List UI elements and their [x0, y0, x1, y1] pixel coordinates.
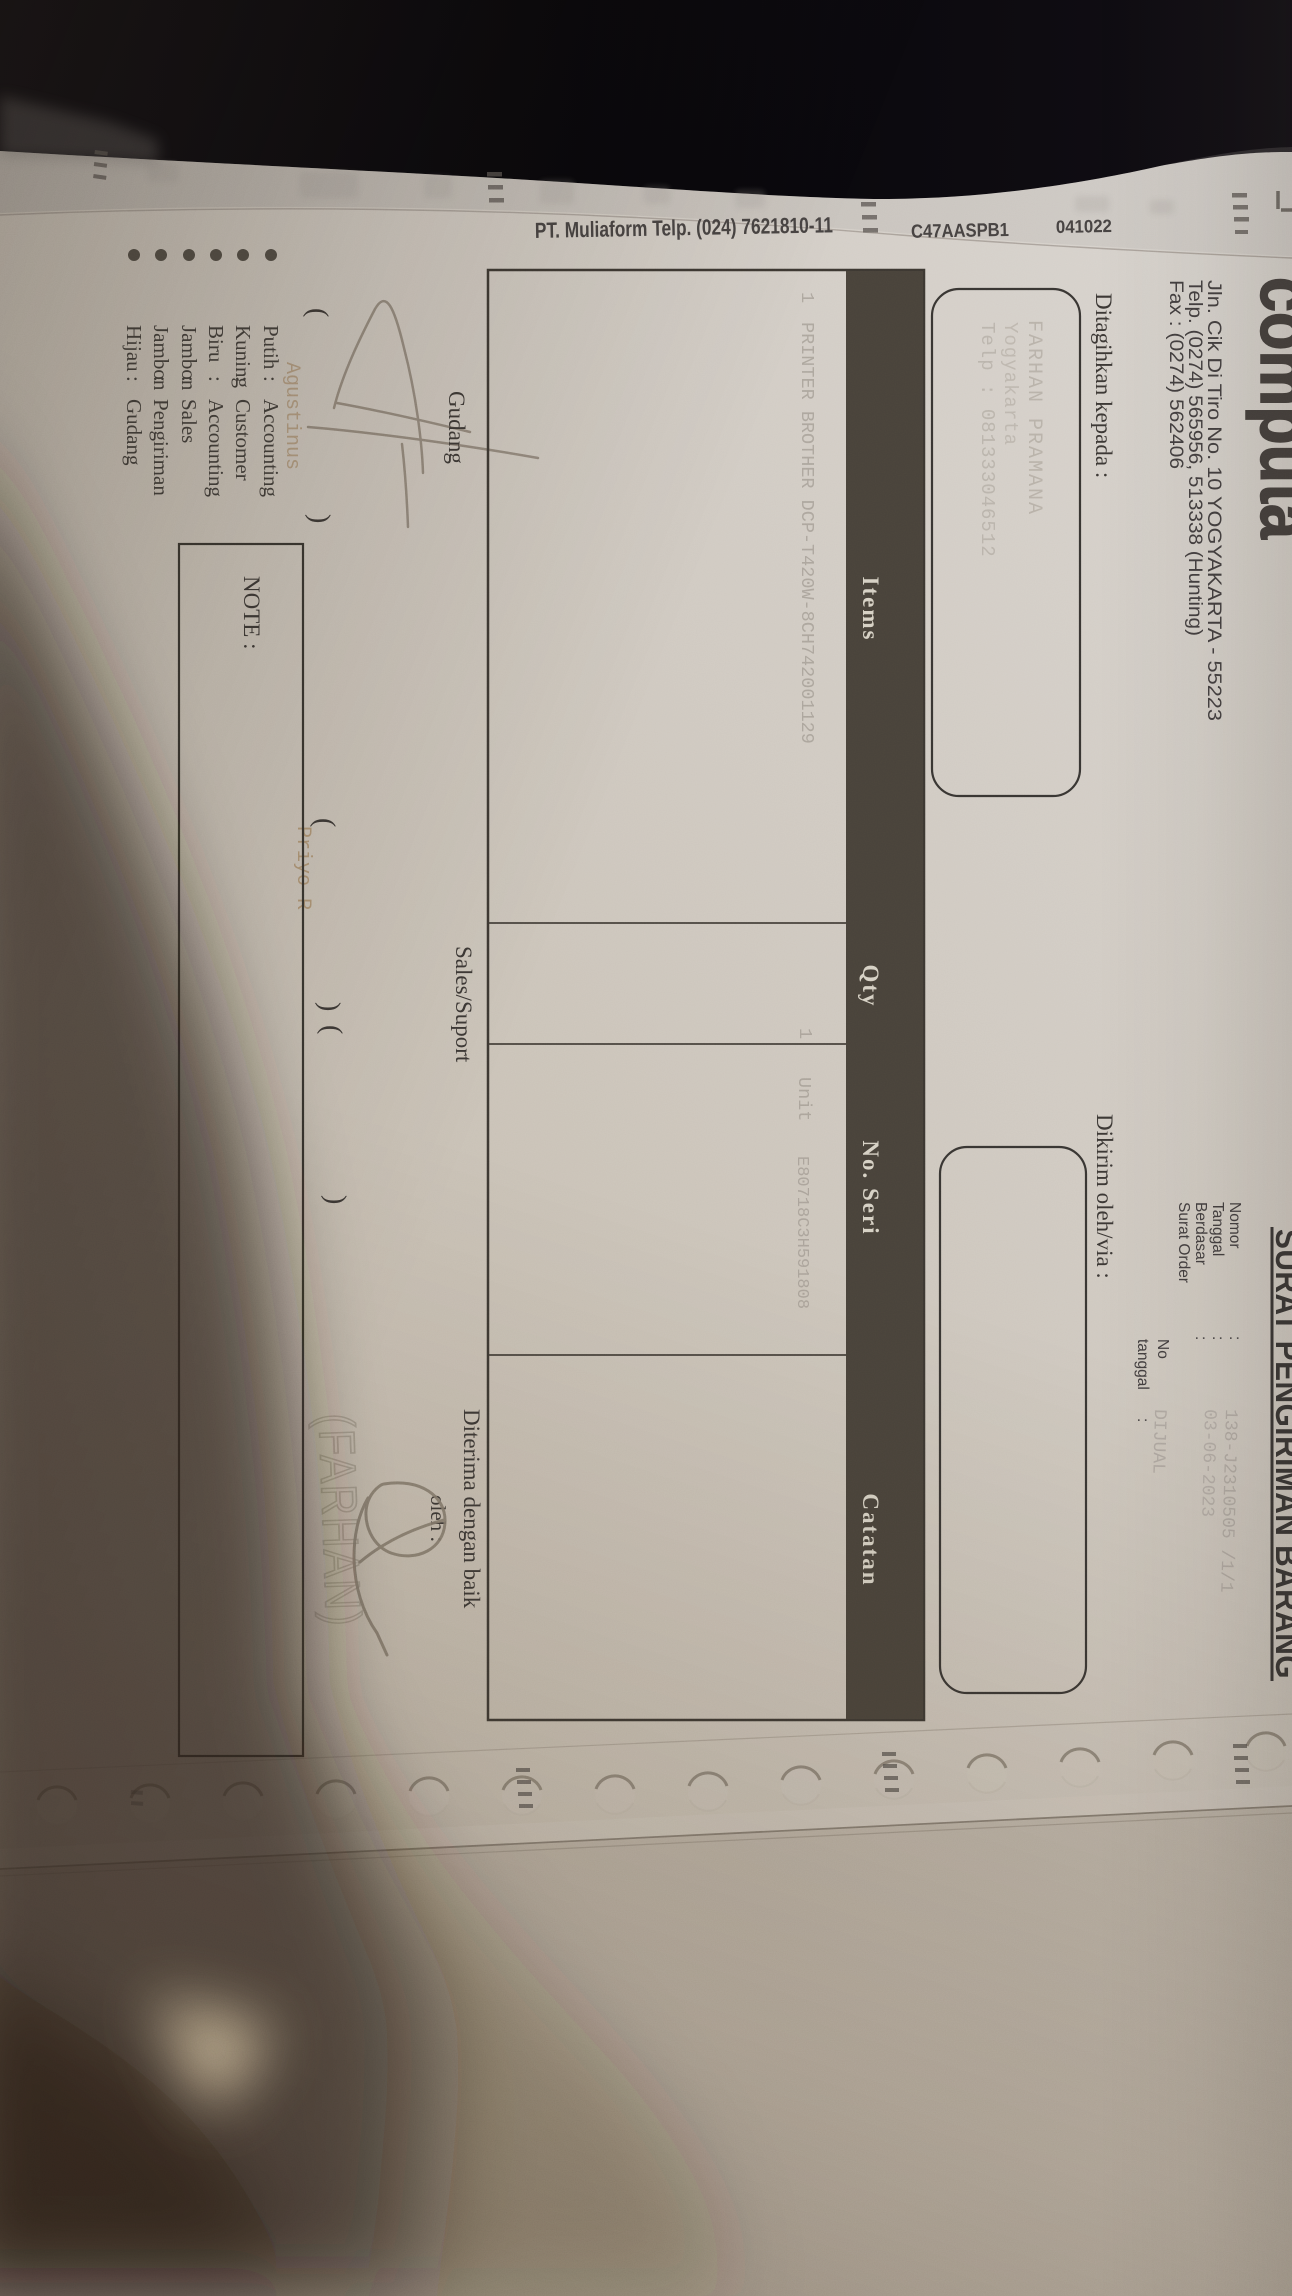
- svg-text:Accounting: Accounting: [259, 399, 283, 497]
- svg-text:): ): [320, 1195, 351, 1204]
- svg-text::: :: [204, 376, 228, 382]
- svg-text:Catatan: Catatan: [858, 1493, 883, 1586]
- svg-text:Items: Items: [858, 577, 883, 642]
- svg-text:Ditagihkan kepada :: Ditagihkan kepada :: [1091, 293, 1116, 478]
- svg-text:Surat Order: Surat Order: [1175, 1202, 1192, 1283]
- svg-text::: :: [1209, 1336, 1226, 1340]
- svg-text:1: 1: [794, 1028, 815, 1039]
- svg-text:03-06-2023: 03-06-2023: [1196, 1409, 1219, 1518]
- svg-text:FARHAN PRAMANA: FARHAN PRAMANA: [1022, 320, 1045, 516]
- svg-text:Sales/Suport: Sales/Suport: [451, 946, 476, 1063]
- svg-text:No. Seri: No. Seri: [858, 1140, 883, 1235]
- svg-text:tanggal: tanggal: [1134, 1339, 1151, 1390]
- svg-text:Gudang: Gudang: [444, 391, 469, 464]
- svg-text:Accounting: Accounting: [204, 399, 228, 497]
- svg-text:Berdasar: Berdasar: [1192, 1202, 1209, 1265]
- svg-text:Biru: Biru: [204, 325, 228, 363]
- svg-text::: :: [1226, 1336, 1243, 1340]
- svg-text::: :: [122, 376, 146, 382]
- svg-text::: :: [259, 376, 283, 382]
- svg-text:Telp. (0274) 565956, 513338 (: Telp. (0274) 565956, 513338 (Hunting): [1184, 280, 1206, 636]
- svg-text:(: (: [316, 1025, 347, 1034]
- svg-text:Agustinus: Agustinus: [280, 362, 303, 470]
- svg-text:Putih: Putih: [259, 325, 283, 370]
- svg-text:Jln. Cik Di Tiro No. 10 YOGYAK: Jln. Cik Di Tiro No. 10 YOGYAKARTA - 552…: [1203, 280, 1225, 721]
- svg-text:Pengiriman: Pengiriman: [149, 399, 173, 496]
- svg-text:NOTE :: NOTE :: [239, 576, 264, 649]
- svg-text:computa: computa: [1245, 277, 1292, 540]
- svg-text::: :: [1192, 1336, 1209, 1340]
- svg-text:Customer: Customer: [231, 399, 255, 481]
- svg-text::: :: [1134, 1418, 1151, 1422]
- svg-text:PRINTER BROTHER DCP-T420W-8CH7: PRINTER BROTHER DCP-T420W-8CH742001129: [796, 322, 817, 744]
- svg-text:): ): [304, 514, 335, 523]
- svg-text:Gudang: Gudang: [122, 399, 146, 466]
- svg-text::: :: [149, 376, 173, 382]
- svg-text:Sales: Sales: [177, 399, 201, 443]
- svg-text:Hijau: Hijau: [122, 325, 146, 372]
- svg-text:Dikirim oleh/via :: Dikirim oleh/via :: [1092, 1114, 1117, 1279]
- svg-text:): ): [314, 1002, 345, 1011]
- svg-text:Unit: Unit: [793, 1077, 814, 1121]
- svg-text:Diterima dengan baik: Diterima dengan baik: [459, 1409, 484, 1609]
- svg-text:(FARHAN): (FARHAN): [308, 1412, 371, 1628]
- svg-text:Fax : (0274) 562406: Fax : (0274) 562406: [1165, 280, 1187, 469]
- svg-text:Yogyakarta: Yogyakarta: [999, 322, 1021, 446]
- svg-text:Qty: Qty: [858, 964, 883, 1007]
- svg-text:1: 1: [796, 292, 817, 303]
- svg-text::: :: [177, 376, 201, 382]
- svg-text:Tanggal: Tanggal: [1209, 1202, 1226, 1256]
- svg-text:Nomor: Nomor: [1226, 1202, 1243, 1249]
- svg-text::: :: [231, 376, 255, 382]
- svg-text:No: No: [1154, 1339, 1171, 1359]
- svg-text:DIJUAL: DIJUAL: [1147, 1409, 1169, 1474]
- svg-text:Telp : 081333046512: Telp : 081333046512: [976, 322, 998, 558]
- svg-text:E80718C3H591808: E80718C3H591808: [792, 1156, 811, 1309]
- svg-text:(: (: [302, 308, 333, 317]
